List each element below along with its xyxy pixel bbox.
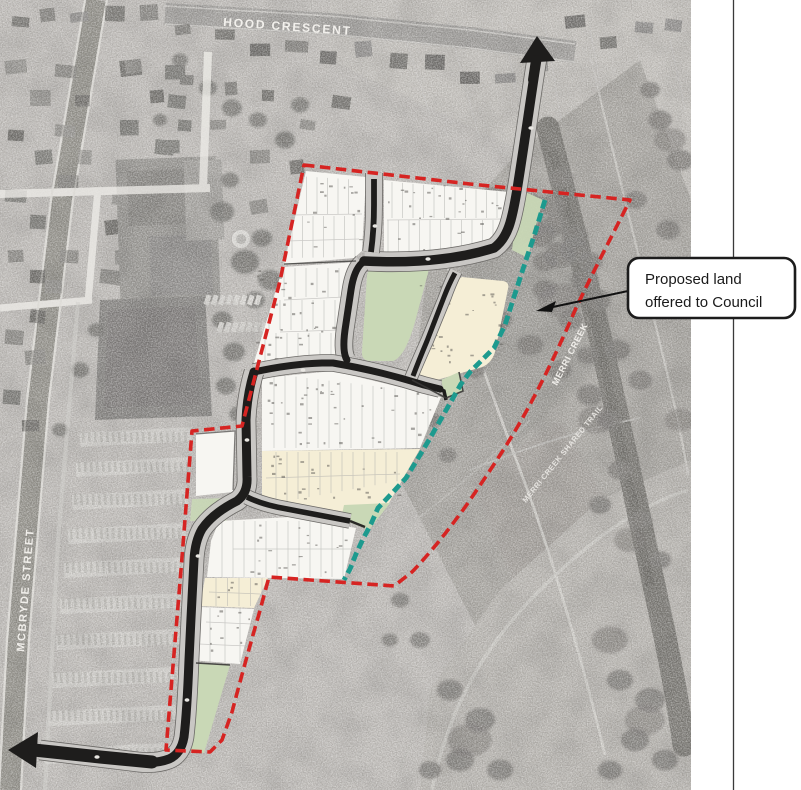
svg-text:offered to Council: offered to Council — [645, 294, 762, 311]
svg-text:Proposed land: Proposed land — [645, 271, 742, 288]
